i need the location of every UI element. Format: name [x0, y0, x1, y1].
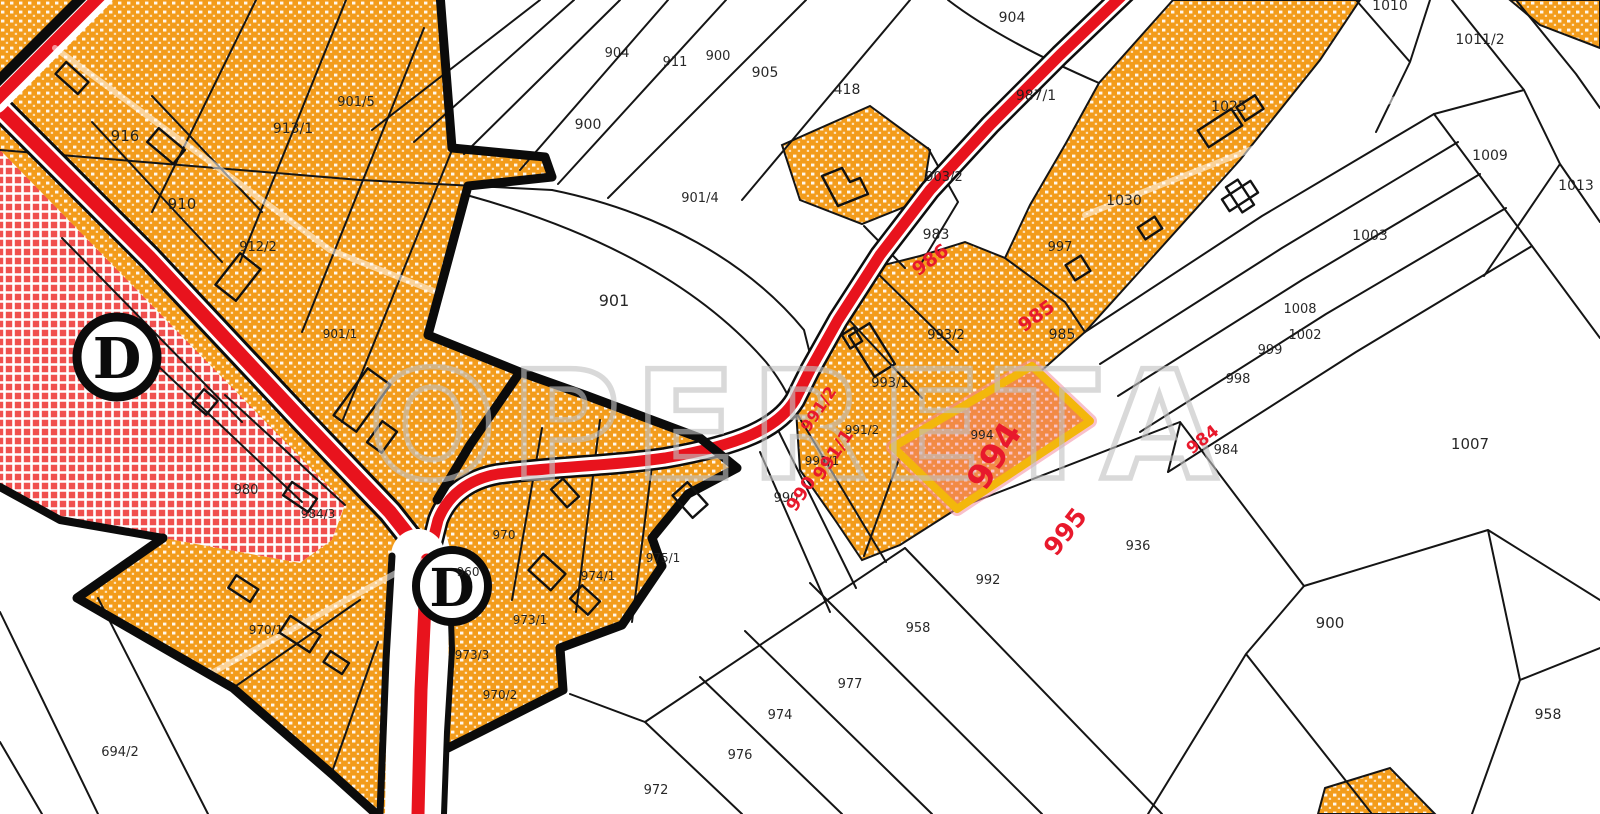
- parcel-label-960: 960: [457, 565, 480, 579]
- parcel-label-910: 910: [168, 195, 197, 213]
- parcel-label-970/1: 970/1: [249, 623, 284, 637]
- parcel-label-984/3: 984/3: [301, 507, 336, 521]
- parcel-label-911: 911: [663, 55, 688, 70]
- parcel-label-901/5: 901/5: [337, 95, 374, 110]
- parcel-label-1030: 1030: [1106, 193, 1142, 209]
- parcel-label-974/1: 974/1: [581, 569, 616, 583]
- parcel-label-1003: 1003: [1352, 228, 1388, 244]
- parcel-label-418: 418: [834, 82, 861, 98]
- parcel-label-904: 904: [999, 10, 1026, 26]
- parcel-label-993/1: 993/1: [871, 376, 908, 391]
- parcel-label-900: 900: [706, 49, 731, 64]
- parcel-label-999: 999: [1258, 343, 1283, 358]
- parcel-label-916: 916: [111, 127, 140, 145]
- parcel-label-1009: 1009: [1472, 148, 1508, 164]
- d-marker-1: D: [77, 317, 157, 397]
- parcel-label-1025: 1025: [1211, 99, 1247, 115]
- parcel-label-993/2: 993/2: [927, 328, 964, 343]
- parcel-label-970: 970: [493, 528, 516, 542]
- parcel-label-901/1: 901/1: [323, 327, 358, 341]
- parcel-label-992: 992: [976, 573, 1001, 588]
- parcel-label-984: 984: [1214, 443, 1239, 458]
- parcel-label-975/1: 975/1: [646, 551, 681, 565]
- parcel-label-970/2: 970/2: [483, 688, 518, 702]
- parcel-label-958: 958: [1535, 707, 1562, 723]
- parcel-label-987/1: 987/1: [1016, 88, 1056, 104]
- parcel-label-973/1: 973/1: [513, 613, 548, 627]
- parcel-label-985: 985: [1049, 327, 1076, 343]
- parcel-label-900: 900: [1316, 614, 1345, 632]
- parcel-label-1007: 1007: [1451, 435, 1489, 453]
- parcel-label-974: 974: [768, 708, 793, 723]
- parcel-label-998: 998: [1226, 372, 1251, 387]
- parcel-label-904: 904: [605, 46, 630, 61]
- map-viewport[interactable]: OPERETA D D 916910913/1901/5912/29049119…: [0, 0, 1600, 814]
- parcel-label-958: 958: [906, 621, 931, 636]
- parcel-label-900: 900: [575, 117, 602, 133]
- parcel-label-901: 901: [599, 291, 630, 310]
- parcel-label-936: 936: [1126, 539, 1151, 554]
- parcel-label-694/2: 694/2: [101, 745, 138, 760]
- d-marker-2: D: [416, 550, 488, 622]
- parcel-label-976: 976: [728, 748, 753, 763]
- parcel-label-1011/2: 1011/2: [1455, 32, 1504, 48]
- parcel-label-972: 972: [644, 783, 669, 798]
- zone-orange-bottom-triangle: [1318, 768, 1435, 814]
- parcel-label-912/2: 912/2: [239, 240, 276, 255]
- zone-orange-top-right-corner: [1510, 0, 1600, 48]
- d-marker-1-letter: D: [93, 326, 142, 392]
- parcel-label-1010: 1010: [1372, 0, 1408, 14]
- parcel-label-983: 983: [923, 227, 950, 243]
- parcel-label-1013: 1013: [1558, 178, 1594, 194]
- parcel-label-997: 997: [1048, 240, 1073, 255]
- parcel-label-980: 980: [234, 483, 259, 498]
- parcel-label-977: 977: [838, 677, 863, 692]
- parcel-label-905: 905: [752, 65, 779, 81]
- parcel-label-1008: 1008: [1283, 302, 1316, 317]
- parcel-label-901/4: 901/4: [681, 191, 718, 206]
- parcel-label-913/1: 913/1: [273, 121, 313, 137]
- parcel-label-973/3: 973/3: [455, 648, 490, 662]
- parcel-label-903/2: 903/2: [925, 170, 962, 185]
- cadastral-map-canvas[interactable]: OPERETA D D 916910913/1901/5912/29049119…: [0, 0, 1600, 814]
- parcel-label-1002: 1002: [1288, 328, 1321, 343]
